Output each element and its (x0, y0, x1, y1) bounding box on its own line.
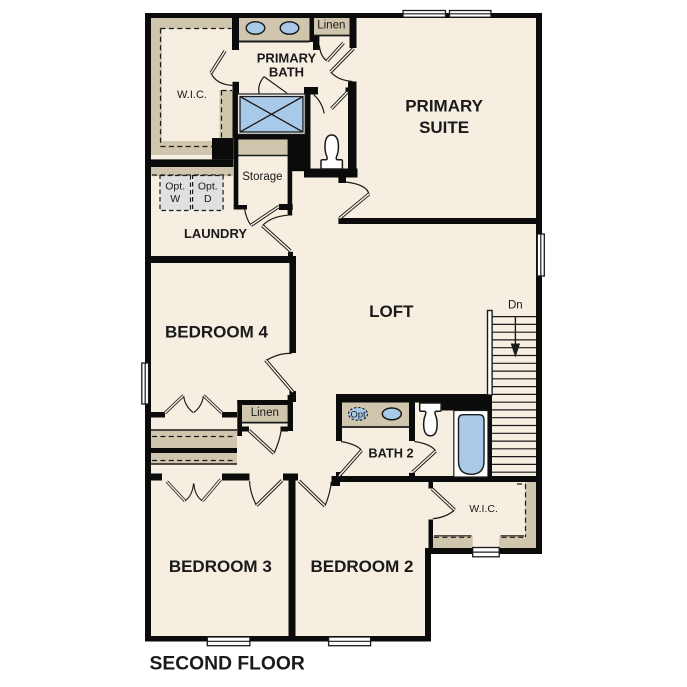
svg-text:W: W (170, 193, 180, 205)
svg-text:Linen: Linen (317, 20, 345, 32)
svg-text:BEDROOM 3: BEDROOM 3 (169, 557, 272, 576)
svg-text:D: D (204, 193, 212, 205)
svg-text:BEDROOM 2: BEDROOM 2 (311, 557, 414, 576)
svg-text:Linen: Linen (251, 407, 279, 419)
svg-text:BATH 2: BATH 2 (368, 445, 413, 460)
svg-text:SUITE: SUITE (419, 118, 469, 137)
svg-text:PRIMARY: PRIMARY (405, 97, 483, 116)
svg-text:PRIMARY: PRIMARY (257, 51, 317, 66)
svg-text:Opt.: Opt. (198, 181, 218, 193)
svg-text:Opt: Opt (350, 409, 366, 420)
svg-text:W.I.C.: W.I.C. (469, 503, 498, 515)
svg-text:LOFT: LOFT (369, 302, 414, 321)
svg-text:BEDROOM 4: BEDROOM 4 (165, 322, 269, 341)
svg-text:BATH: BATH (269, 64, 304, 79)
svg-text:SECOND FLOOR: SECOND FLOOR (150, 653, 305, 674)
svg-text:Dn: Dn (508, 299, 523, 311)
svg-text:LAUNDRY: LAUNDRY (184, 226, 247, 241)
svg-text:Storage: Storage (242, 171, 282, 183)
svg-text:W.I.C.: W.I.C. (177, 89, 207, 101)
svg-text:Opt.: Opt. (165, 181, 185, 193)
